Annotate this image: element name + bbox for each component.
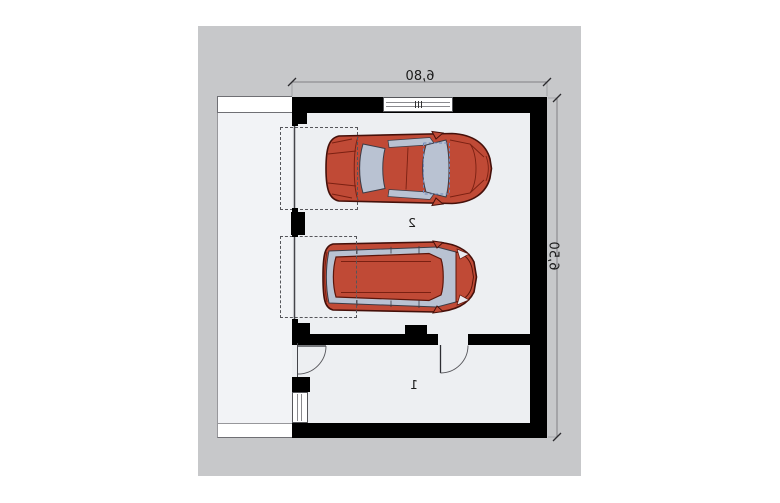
wall-interior-right	[468, 334, 530, 345]
apron-top-band	[217, 96, 292, 113]
room-2-number-label: 2	[402, 215, 422, 230]
parking-bay-2-outline	[280, 236, 357, 318]
dimension-width-label: 6,80	[398, 69, 442, 84]
wall-pier-top	[292, 97, 307, 124]
window-left-wall	[292, 392, 308, 423]
wall-pier-lower	[292, 323, 310, 345]
room-1-number-label: 1	[404, 377, 424, 392]
floor-plan-page: 6,80 6,50 2 1	[0, 0, 780, 503]
apron-bottom-band	[217, 423, 292, 438]
wall-right	[530, 97, 547, 438]
wall-pier-below-door	[292, 377, 310, 392]
wall-bottom	[292, 423, 547, 438]
window-top-wall	[383, 97, 453, 112]
wall-pier-interior	[405, 325, 427, 345]
wall-pier-middle	[291, 212, 305, 235]
parking-bay-1-outline	[280, 127, 358, 210]
dimension-height-label: 6,50	[546, 242, 561, 271]
floorplan-canvas: 6,80 6,50 2 1	[198, 26, 581, 476]
